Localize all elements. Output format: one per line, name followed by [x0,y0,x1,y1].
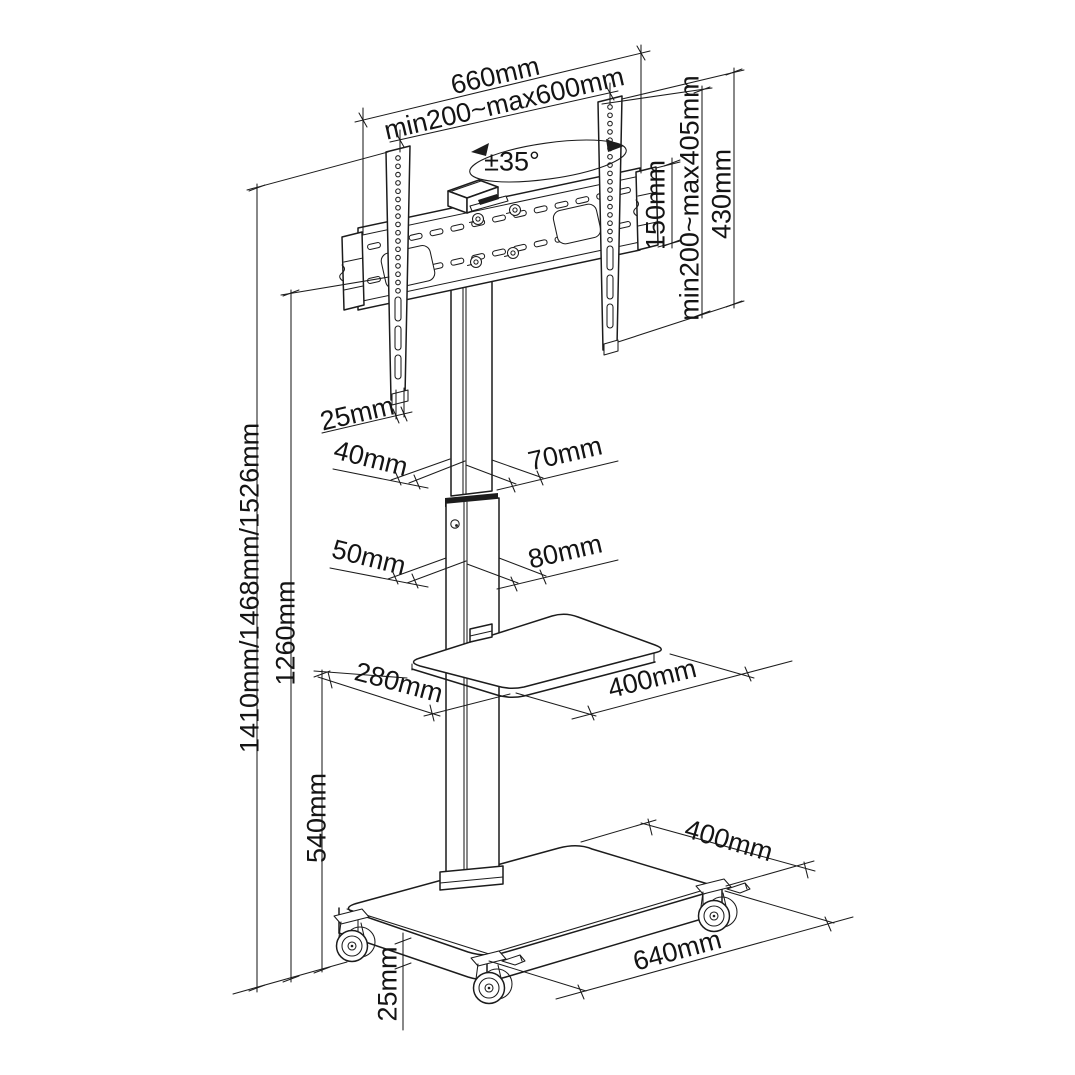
label-base-width: 640mm [630,924,725,976]
label-column-upper-width: 70mm [525,430,605,476]
label-overall-heights: 1410mm/1468mm/1526mm [234,423,264,753]
label-base-depth: 400mm [681,814,776,868]
label-bracket-offset: 25mm [317,390,397,436]
tv-stand-dimension-drawing: 660mm min200~max600mm ±35° 150mm min200~… [0,0,1075,1075]
label-column-lower-depth: 50mm [329,534,409,581]
label-ground-clearance: 25mm [372,946,402,1021]
label-vesa-height: min200~max405mm [674,75,704,320]
label-swivel-angle: ±35° [484,146,540,176]
label-column-lower-width: 80mm [525,528,605,574]
label-shelf-mount-height: 540mm [301,773,331,863]
label-adapter-height: 150mm [640,160,670,250]
end-clip-left [340,232,364,310]
label-column-upper-depth: 40mm [331,435,411,482]
column [440,248,503,890]
label-column-height: 1260mm [270,580,300,685]
vesa-strip-left [386,146,410,405]
vesa-strip-right [598,96,622,355]
drawing-canvas: 660mm min200~max600mm ±35° 150mm min200~… [0,0,1075,1075]
label-bracket-height: 430mm [706,149,736,239]
